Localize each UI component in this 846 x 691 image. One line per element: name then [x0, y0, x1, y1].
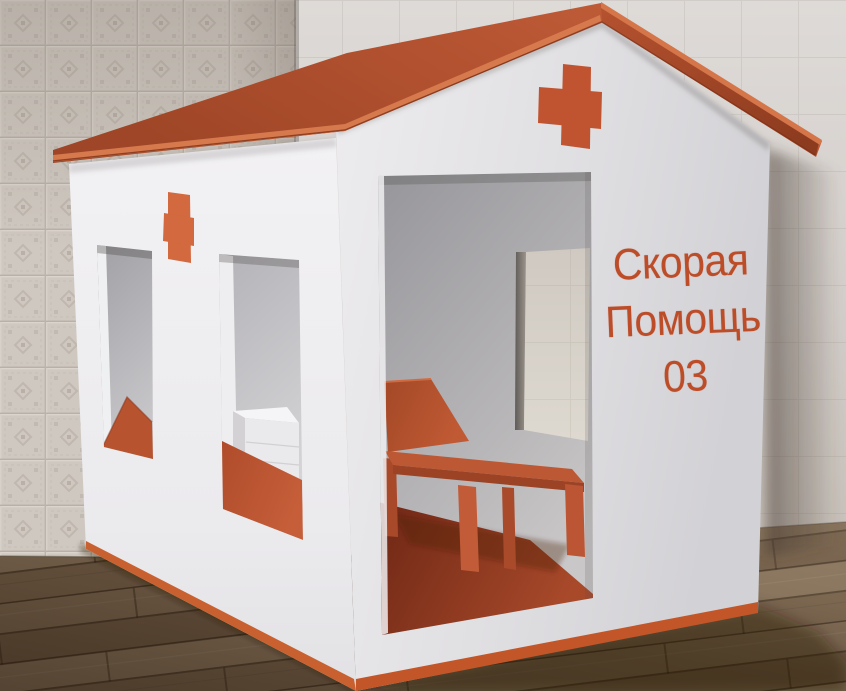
window-opening-2 — [215, 250, 307, 542]
exam-bed-leg — [565, 484, 585, 557]
sign-line-2: Помощь — [597, 287, 768, 351]
interior-window-grid — [524, 248, 590, 441]
medical-cross-front-hbar — [538, 87, 602, 129]
exam-bed-leg — [458, 485, 479, 572]
scene-ambulance-playhouse: Скорая Помощь 03 — [0, 0, 846, 691]
door-opening — [375, 168, 597, 640]
ambulance-sign-text: Скорая Помощь 03 — [595, 231, 771, 409]
exam-bed-leg — [502, 487, 516, 570]
sign-line-3: 03 — [600, 344, 771, 408]
sign-line-1: Скорая — [595, 231, 766, 295]
medical-cross-side-hbar — [163, 213, 194, 246]
house-shadow-on-wall — [764, 148, 840, 556]
